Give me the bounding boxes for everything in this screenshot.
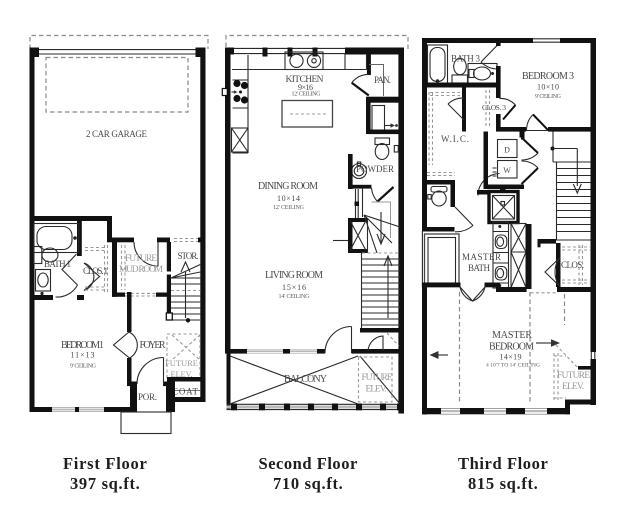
svg-text:STOR.: STOR. — [178, 251, 199, 261]
svg-text:FUTURE: FUTURE — [125, 254, 157, 264]
svg-text:MASTER: MASTER — [492, 330, 532, 341]
svg-text:CLOS. 1: CLOS. 1 — [83, 266, 108, 276]
svg-text:POWDER: POWDER — [356, 164, 394, 174]
svg-text:12' CEILING: 12' CEILING — [292, 92, 322, 98]
svg-text:BEDROOM 3: BEDROOM 3 — [522, 71, 574, 82]
svg-text:15×16: 15×16 — [282, 283, 306, 292]
svg-text:9' CEILING: 9' CEILING — [70, 364, 97, 370]
svg-text:DINING ROOM: DINING ROOM — [258, 181, 318, 192]
svg-text:BATH: BATH — [468, 263, 491, 273]
svg-text:MUD ROOM: MUD ROOM — [119, 265, 164, 275]
svg-text:14' CEILING: 14' CEILING — [279, 294, 311, 300]
svg-text:710 sq.ft.: 710 sq.ft. — [273, 474, 343, 493]
svg-text:14×19: 14×19 — [500, 353, 522, 362]
svg-text:FUTURE: FUTURE — [362, 373, 393, 383]
svg-text:FUTURE: FUTURE — [165, 358, 198, 368]
svg-text:9' CEILING: 9' CEILING — [535, 94, 562, 100]
svg-text:12' CEILING: 12' CEILING — [273, 205, 305, 211]
svg-text:BEDROOM: BEDROOM — [489, 342, 534, 353]
svg-text:BALCONY: BALCONY — [284, 374, 327, 385]
svg-text:Second Floor: Second Floor — [259, 454, 358, 473]
svg-text:10×10: 10×10 — [537, 83, 559, 92]
svg-text:MASTER: MASTER — [462, 252, 501, 262]
svg-text:D: D — [504, 146, 510, 155]
svg-text:FUTURE: FUTURE — [557, 371, 590, 381]
svg-text:LIVING ROOM: LIVING ROOM — [265, 270, 323, 281]
svg-text:BATH 3: BATH 3 — [451, 54, 481, 64]
svg-text:W.I.C.: W.I.C. — [441, 134, 469, 144]
svg-text:W: W — [503, 166, 511, 175]
svg-text:FOYER: FOYER — [140, 340, 166, 351]
svg-text:CLOS.: CLOS. — [561, 260, 584, 270]
svg-text:Third Floor: Third Floor — [458, 454, 548, 473]
svg-text:ELEV.: ELEV. — [562, 382, 584, 392]
svg-text:POR.: POR. — [138, 392, 157, 402]
svg-text:BEDROOM 1: BEDROOM 1 — [61, 340, 104, 351]
svg-text:11×13: 11×13 — [71, 351, 95, 360]
svg-text:4 10'7 TO 14' CEILING: 4 10'7 TO 14' CEILING — [486, 363, 540, 369]
svg-text:815 sq.ft.: 815 sq.ft. — [468, 474, 538, 493]
svg-text:PAN.: PAN. — [374, 75, 391, 85]
svg-text:CLOS. 3: CLOS. 3 — [482, 103, 506, 112]
svg-text:COAT: COAT — [172, 387, 199, 397]
svg-text:397 sq.ft.: 397 sq.ft. — [70, 474, 140, 493]
svg-text:ELEV.: ELEV. — [366, 385, 387, 395]
svg-text:10×14: 10×14 — [277, 194, 300, 203]
svg-text:First Floor: First Floor — [63, 454, 147, 473]
svg-text:2 CAR GARAGE: 2 CAR GARAGE — [86, 129, 148, 139]
